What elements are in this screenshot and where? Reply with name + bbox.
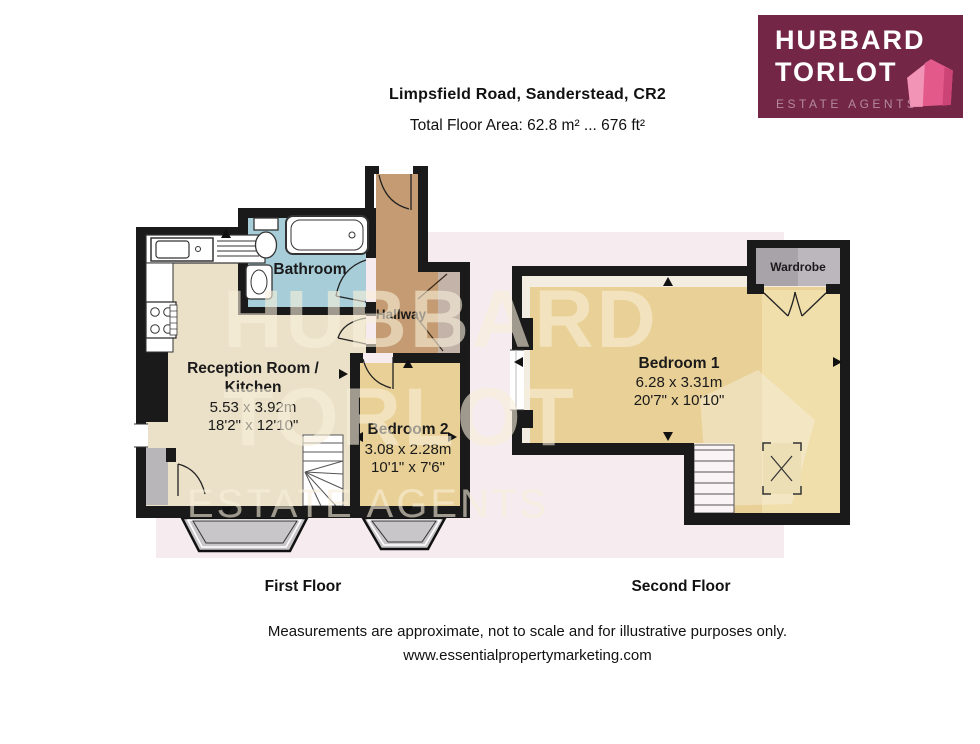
bedroom1-dims-imperial: 20'7" x 10'10": [634, 392, 725, 409]
skylight-icon: [763, 443, 801, 494]
porch-area: [146, 448, 168, 505]
logo-name-line1: HUBBARD: [775, 25, 926, 56]
disclaimer-text: Measurements are approximate, not to sca…: [40, 623, 980, 640]
second-floor-caption: Second Floor: [512, 578, 850, 596]
house-icon: [903, 56, 957, 110]
watermark-line3: ESTATE AGENTS: [187, 482, 549, 526]
estate-agent-logo: HUBBARD TORLOT ESTATE AGENTS: [758, 15, 963, 118]
window-left-wall: [134, 424, 148, 447]
first-floor-caption: First Floor: [136, 578, 470, 596]
website-text: www.essentialpropertymarketing.com: [40, 647, 980, 664]
watermark-line1: HUBBARD: [223, 274, 659, 365]
toilet-icon: [254, 218, 278, 258]
bedroom1-dims-metric: 6.28 x 3.31m: [636, 374, 723, 391]
logo-name-line2: TORLOT: [775, 57, 898, 88]
bathtub-icon: [286, 216, 368, 254]
wardrobe-label: Wardrobe: [770, 260, 826, 274]
watermark-line2: TORLOT: [223, 372, 577, 463]
floorplan-page: Bathroom Hallway Reception Room / Kitche…: [0, 0, 980, 744]
total-floor-area: Total Floor Area: 62.8 m² ... 676 ft²: [40, 117, 980, 135]
logo-tagline: ESTATE AGENTS: [776, 97, 918, 111]
stove-icon: [146, 302, 177, 338]
staircase-second-floor: [694, 445, 734, 513]
